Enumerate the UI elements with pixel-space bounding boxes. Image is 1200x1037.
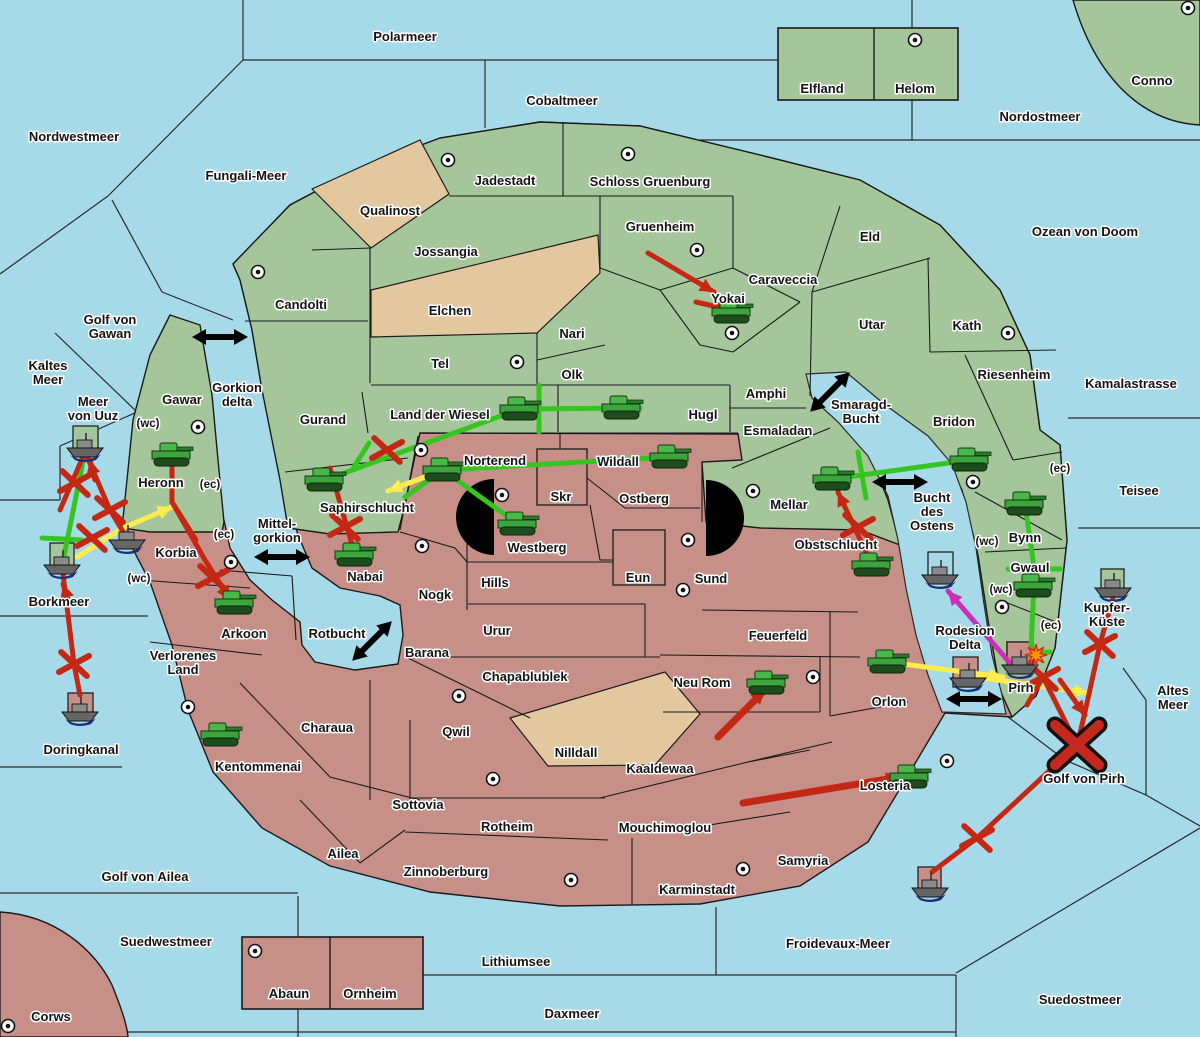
sea-label-lithiumsee[interactable]: Lithiumsee [482,954,551,969]
city-marker-icon [726,327,739,340]
city-marker-icon [453,690,466,703]
sea-label-golf-von-pirh[interactable]: Golf von Pirh [1043,771,1125,786]
territory-label-caraveccia[interactable]: Caraveccia [749,272,818,287]
territory-label-corws[interactable]: Corws [31,1009,71,1024]
territory-label-charaua[interactable]: Charaua [301,720,354,735]
city-marker-icon [1182,2,1195,15]
ship-hull [1095,588,1131,597]
tank-tread [500,527,535,535]
coast-tag-label: (ec) [200,479,221,491]
sea-label-borkmeer[interactable]: Borkmeer [29,594,90,609]
territory-label-eld[interactable]: Eld [860,229,880,244]
tank-tread [217,606,252,614]
coast-tag-label: (wc) [137,418,160,430]
city-marker-icon [807,671,820,684]
territory-label-kentommenai[interactable]: Kentommenai [215,759,301,774]
sea-label-altes-meer[interactable]: AltesMeer [1157,683,1189,712]
city-dot [253,949,258,954]
sea-label-polarmeer[interactable]: Polarmeer [373,29,437,44]
ship-superstructure [72,704,87,712]
ship-hull [62,712,98,721]
territory-label-esmaladan[interactable]: Esmaladan [744,423,813,438]
city-dot [1006,331,1011,336]
coast-tag-label: (wc) [128,573,151,585]
territory-label-elfland[interactable]: Elfland [800,81,843,96]
coast-tag-label: (ec) [214,529,235,541]
territory-label-arkoon[interactable]: Arkoon [221,626,267,641]
ship-hull [912,888,948,897]
territory-label-candolti[interactable]: Candolti [275,297,327,312]
tank-tread [854,568,889,576]
city-dot [626,152,631,157]
city-marker-icon [511,356,524,369]
city-marker-icon [996,601,1009,614]
territory-label-hugl[interactable]: Hugl [689,407,718,422]
city-marker-icon [2,1020,15,1033]
tank-tread [502,412,537,420]
tank-tread [337,558,372,566]
city-dot [446,158,451,163]
explosion-burst-icon [1025,644,1047,666]
city-marker-icon [487,773,500,786]
tank-tread [652,460,687,468]
territory-label-jossangia[interactable]: Jossangia [414,244,478,259]
territory-label-rotheim[interactable]: Rotheim [481,819,533,834]
territory-label-chapablublek[interactable]: Chapablublek [482,669,568,684]
territory-label-elchen[interactable]: Elchen [429,303,472,318]
city-marker-icon [747,485,760,498]
territory-label-eun[interactable]: Eun [626,570,651,585]
burst-star [1025,644,1047,666]
territory-label-abaun[interactable]: Abaun [269,986,310,1001]
territory-label-westberg[interactable]: Westberg [508,540,567,555]
coast-tag-label: (wc) [976,536,999,548]
city-marker-icon [496,489,509,502]
city-marker-icon [677,584,690,597]
tank-tread [749,686,784,694]
territory-label-ostberg[interactable]: Ostberg [619,491,669,506]
tank-tread [307,483,342,491]
ship-superstructure [77,440,92,448]
territory-label-kaaldewaa[interactable]: Kaaldewaa [626,761,694,776]
territory-label-helom[interactable]: Helom [895,81,935,96]
city-dot [6,1024,11,1029]
tank-tread [203,738,238,746]
ship-hull [1002,665,1038,674]
territory-label-korbia[interactable]: Korbia [155,545,197,560]
city-dot [751,489,756,494]
sea-label-rotbucht[interactable]: Rotbucht [308,626,366,641]
ship-superstructure [960,670,975,678]
ship-superstructure [922,880,937,888]
city-marker-icon [691,244,704,257]
territory-label-nabai[interactable]: Nabai [347,569,382,584]
territory-label-tel[interactable]: Tel [431,356,449,371]
city-marker-icon [415,444,428,457]
territory-label-bridon[interactable]: Bridon [933,414,975,429]
territory-label-utar[interactable]: Utar [859,317,885,332]
ship-superstructure [54,557,69,565]
city-dot [686,538,691,543]
city-dot [256,270,261,275]
city-dot [811,675,816,680]
sea-label-suedostmeer[interactable]: Suedostmeer [1039,992,1121,1007]
city-dot [419,448,424,453]
city-marker-icon [416,540,429,553]
game-map-stage: PolarmeerCobaltmeerNordwestmeerFungali-M… [0,0,1200,1037]
territory-label-nari[interactable]: Nari [559,326,584,341]
city-dot [741,867,746,872]
city-dot [515,360,520,365]
territory-label-jadestadt[interactable]: Jadestadt [475,173,536,188]
territory-label-zinnoberburg[interactable]: Zinnoberburg [404,864,489,879]
territory-label-yokai[interactable]: Yokai [711,291,745,306]
territory-label-nilldall[interactable]: Nilldall [555,745,598,760]
ship-hull [950,678,986,687]
sea-label-daxmeer[interactable]: Daxmeer [545,1006,600,1021]
territory-label-skr[interactable]: Skr [551,489,572,504]
territory-label-neu-rom[interactable]: Neu Rom [673,675,730,690]
sea-label-doringkanal[interactable]: Doringkanal [43,742,118,757]
ship-superstructure [1105,580,1120,588]
ship-hull [109,540,145,549]
territory-label-sund[interactable]: Sund [695,571,728,586]
coast-tag-label: (ec) [1041,620,1062,632]
city-dot [186,705,191,710]
city-marker-icon [225,556,238,569]
sea-label-cobaltmeer[interactable]: Cobaltmeer [526,93,598,108]
city-dot [229,560,234,565]
city-marker-icon [182,701,195,714]
city-dot [681,588,686,593]
territory-label-amphi[interactable]: Amphi [746,386,786,401]
territory-label-gruenheim[interactable]: Gruenheim [626,219,695,234]
territory-label-schloss-gruenburg[interactable]: Schloss Gruenburg [590,174,711,189]
city-dot [500,493,505,498]
city-marker-icon [737,863,750,876]
ship-hull [44,565,80,574]
territory-label-mellar[interactable]: Mellar [770,497,808,512]
tank-tread [604,411,639,419]
sea-label-teisee[interactable]: Teisee [1119,483,1159,498]
territory-label-nogk[interactable]: Nogk [419,587,452,602]
city-marker-icon [252,266,265,279]
city-dot [695,248,700,253]
city-dot [1000,605,1005,610]
city-marker-icon [967,476,980,489]
territory-label-barana[interactable]: Barana [405,645,450,660]
territory-label-saphirschlucht[interactable]: Saphirschlucht [320,500,415,515]
coast-tag-label: (wc) [990,584,1013,596]
territory-label-gwaul[interactable]: Gwaul [1010,560,1049,575]
territory-label-wildall[interactable]: Wildall [597,454,639,469]
territory-label-pirh[interactable]: Pirh [1008,680,1033,695]
territory-label-kath[interactable]: Kath [953,318,982,333]
sea-label-ozean-von-doom[interactable]: Ozean von Doom [1032,224,1138,239]
sea-label-froidevaux-meer[interactable]: Froidevaux-Meer [786,936,890,951]
territory-label-heronn[interactable]: Heronn [138,475,184,490]
tank-tread [1007,507,1042,515]
city-marker-icon [622,148,635,161]
territory-label-urur[interactable]: Urur [483,623,510,638]
tank-tread [952,463,987,471]
territory-label-kupfer-k-ste[interactable]: Kupfer-Küste [1084,600,1130,629]
territory-label-land-der-wiesel[interactable]: Land der Wiesel [390,407,490,422]
territory-label-obstschlucht[interactable]: Obstschlucht [794,537,878,552]
coast-tag-label: (ec) [1050,463,1071,475]
city-marker-icon [682,534,695,547]
territory-label-qwil[interactable]: Qwil [442,724,469,739]
city-marker-icon [565,874,578,887]
city-dot [491,777,496,782]
tank-tread [154,458,189,466]
territory-label-ornheim[interactable]: Ornheim [343,986,396,1001]
city-dot [569,878,574,883]
territory-label-sottovia[interactable]: Sottovia [392,797,444,812]
city-dot [196,425,201,430]
city-dot [971,480,976,485]
territory-label-losteria[interactable]: Losteria [860,778,911,793]
territory-label-bynn[interactable]: Bynn [1009,530,1042,545]
territory-label-mouchimoglou[interactable]: Mouchimoglou [619,820,711,835]
territory-label-ailea[interactable]: Ailea [327,846,359,861]
sea-label-kamalastrasse[interactable]: Kamalastrasse [1085,376,1177,391]
city-dot [457,694,462,699]
ship-superstructure [119,532,134,540]
territory-label-karminstadt[interactable]: Karminstadt [659,882,736,897]
green-route [42,538,82,540]
territory-label-hills[interactable]: Hills [481,575,508,590]
city-dot [945,759,950,764]
route-line [42,538,82,540]
city-marker-icon [909,34,922,47]
territory-label-qualinost[interactable]: Qualinost [360,203,421,218]
city-marker-icon [941,755,954,768]
sea-label-mittel-gorkion[interactable]: Mittel-gorkion [253,516,301,545]
sea-label-nordwestmeer[interactable]: Nordwestmeer [29,129,119,144]
city-marker-icon [192,421,205,434]
territory-label-conno[interactable]: Conno [1131,73,1172,88]
territory-label-olk[interactable]: Olk [562,367,584,382]
tank-tread [1016,589,1051,597]
city-dot [420,544,425,549]
city-marker-icon [249,945,262,958]
city-marker-icon [1002,327,1015,340]
territory-label-feuerfeld[interactable]: Feuerfeld [749,628,808,643]
sea-label-nordostmeer[interactable]: Nordostmeer [1000,109,1081,124]
tank-tread [815,482,850,490]
territory-label-gawar[interactable]: Gawar [162,392,202,407]
tank-tread [714,315,749,323]
ship-superstructure [932,567,947,575]
territory-label-orlon[interactable]: Orlon [872,694,907,709]
sea-label-suedwestmeer[interactable]: Suedwestmeer [120,934,212,949]
sea-label-kaltes-meer[interactable]: KaltesMeer [28,358,67,387]
city-dot [730,331,735,336]
city-dot [913,38,918,43]
ship-hull [67,448,103,457]
city-marker-icon [442,154,455,167]
ship-superstructure [1012,657,1027,665]
territory-label-riesenheim[interactable]: Riesenheim [978,367,1051,382]
tank-tread [870,665,905,673]
territory-label-norterend[interactable]: Norterend [464,453,526,468]
city-dot [1186,6,1191,11]
sea-label-fungali-meer[interactable]: Fungali-Meer [206,168,287,183]
sea-label-golf-von-ailea[interactable]: Golf von Ailea [102,869,190,884]
war-game-map[interactable]: PolarmeerCobaltmeerNordwestmeerFungali-M… [0,0,1200,1037]
territory-label-samyria[interactable]: Samyria [778,853,829,868]
tank-tread [425,473,460,481]
sea-label-golf-von-gawan[interactable]: Golf vonGawan [84,312,137,341]
territory-label-gurand[interactable]: Gurand [300,412,346,427]
ship-hull [922,575,958,584]
